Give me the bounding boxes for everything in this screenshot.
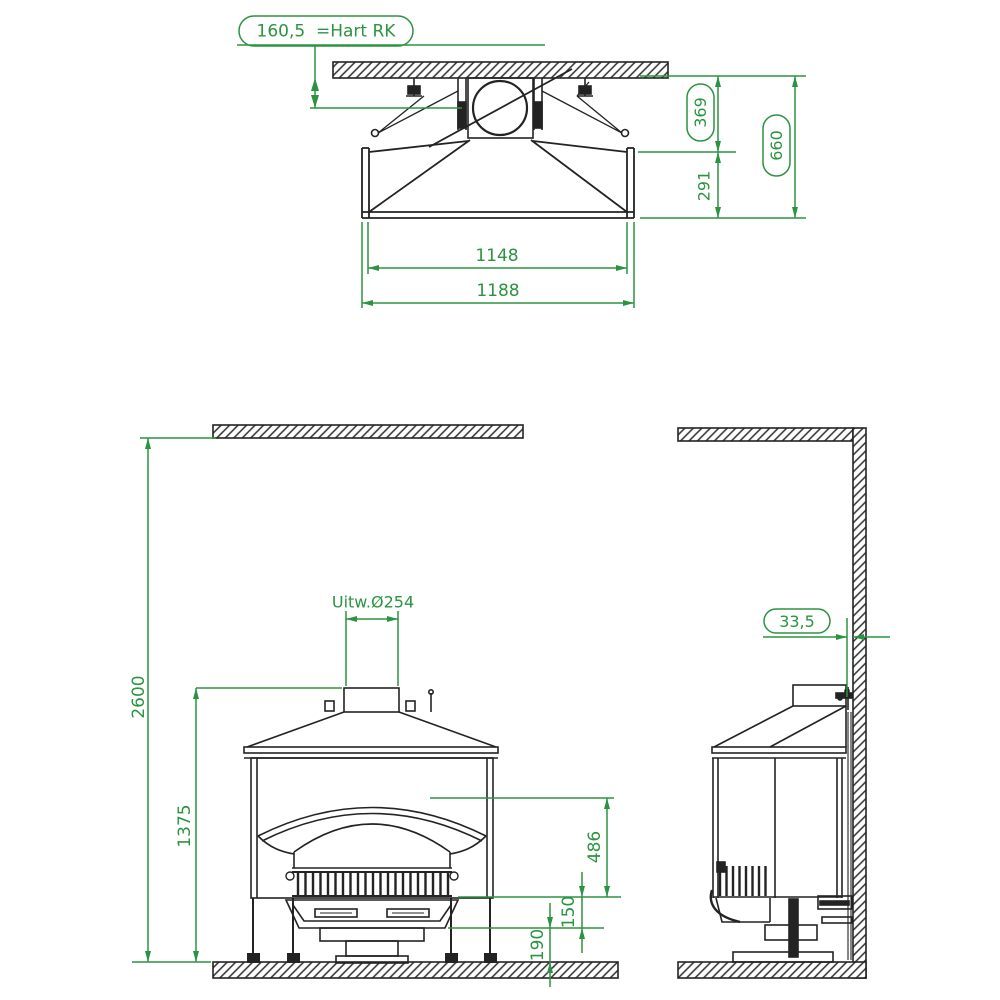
dim-label-1375: 1375 [175,804,195,847]
dim-label-291: 291 [695,171,714,202]
dim-label-2600: 2600 [129,675,149,718]
dim-label-486: 486 [585,831,605,863]
side-ceiling-hatched [678,428,853,441]
canvas-background [0,0,1000,1000]
fire-grate-front [286,868,458,896]
rear-bracket-band [820,901,849,905]
bracket-bolt-1 [838,696,842,700]
dim-label-hart-rk: 160,5 =Hart RK [257,22,397,42]
pedestal-column-side [789,899,798,957]
side-floor-hatched [678,962,866,978]
side-wall-hatched [853,428,866,978]
dim-label-369: 369 [691,97,710,128]
dim-label-190: 190 [528,929,548,961]
ceiling-plate-hatched [333,62,668,78]
dim-label-33-5: 33,5 [779,612,815,631]
fireplace-dimension-drawing: 160,5 =Hart RK 369 291 660 1148 1188 [0,0,1000,1000]
dim-label-flue-diameter: Uitw.Ø254 [332,593,414,612]
dim-label-150: 150 [559,896,579,928]
dim-label-660: 660 [767,130,786,161]
dim-label-1148: 1148 [475,246,518,266]
technical-drawing-page: 160,5 =Hart RK 369 291 660 1148 1188 [0,0,1000,1000]
front-floor-hatched [213,962,618,978]
dim-label-1188: 1188 [476,281,519,301]
front-ceiling-hatched [213,425,523,438]
